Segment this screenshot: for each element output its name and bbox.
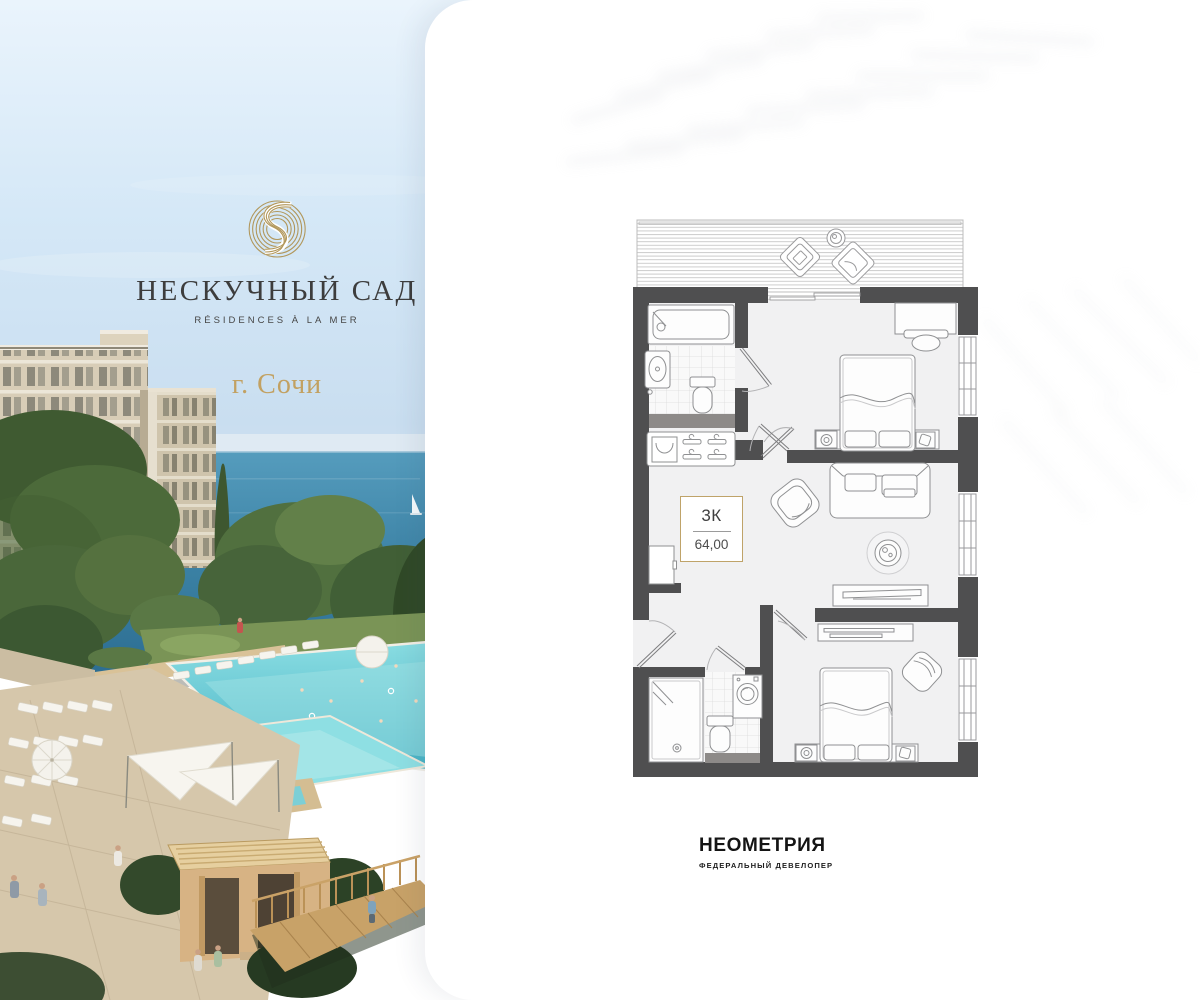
hall	[649, 546, 677, 584]
resort-photo: НЕСКУЧНЫЙ САД RÉSIDENCES À LA MER г. Соч…	[0, 0, 470, 1000]
windows	[959, 337, 976, 740]
area-value: 64,00	[695, 537, 729, 552]
floor-plan-drawing	[625, 210, 985, 785]
wardrobe	[647, 432, 735, 466]
spiral-s-monogram-icon	[246, 198, 308, 260]
flyer-page: НЕСКУЧНЫЙ САД RÉSIDENCES À LA MER г. Соч…	[0, 0, 1200, 1000]
brand-block: НЕСКУЧНЫЙ САД RÉSIDENCES À LA MER г. Соч…	[136, 198, 418, 401]
developer-logo: НЕОМЕТРИЯ ФЕДЕРАЛЬНЫЙ ДЕВЕЛОПЕР	[699, 835, 833, 870]
apartment-label: 3К 64,00	[680, 496, 743, 562]
brand-tagline: RÉSIDENCES À LA MER	[136, 315, 418, 326]
brand-name: НЕСКУЧНЫЙ САД	[136, 275, 418, 308]
rooms-count-label: 3К	[701, 506, 721, 526]
resort-photo-art	[0, 0, 470, 1000]
brand-city: г. Сочи	[136, 369, 418, 401]
developer-name: НЕОМЕТРИЯ	[699, 835, 833, 857]
developer-subtitle: ФЕДЕРАЛЬНЫЙ ДЕВЕЛОПЕР	[699, 861, 833, 870]
label-divider	[693, 531, 731, 532]
plan-card: 3К 64,00 НЕОМЕТРИЯ ФЕДЕРАЛЬНЫЙ ДЕВЕЛОПЕР	[425, 0, 1200, 1000]
